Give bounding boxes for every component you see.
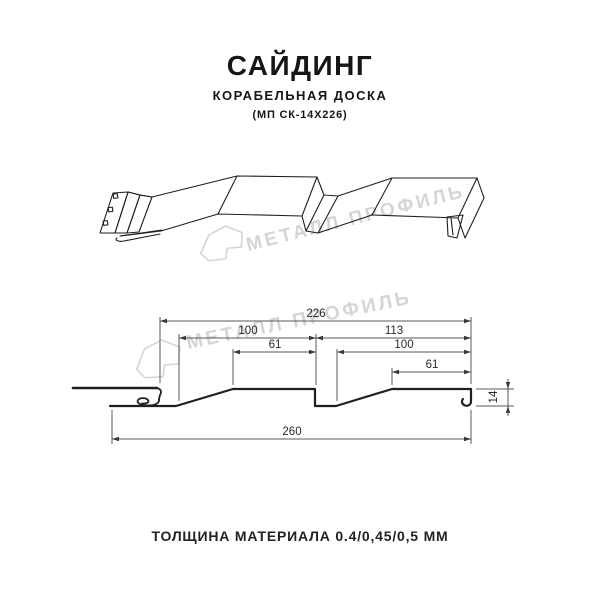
profile-outline (110, 389, 471, 406)
dim-61-right: 61 (426, 359, 439, 371)
perforation-hole (108, 207, 113, 212)
technical-drawing: МЕТАЛЛ ПРОФИЛЬ МЕТАЛЛ ПРОФИЛЬ (0, 0, 600, 600)
dim-260: 260 (282, 426, 301, 438)
dim-14: 14 (488, 390, 500, 403)
perforation-hole (103, 221, 108, 226)
brand-watermark-upper: МЕТАЛЛ ПРОФИЛЬ (196, 181, 467, 264)
lock-fold (115, 192, 140, 233)
dimension-annotations (112, 317, 514, 444)
cross-section-profile (73, 388, 471, 406)
dim-100-right: 100 (394, 339, 413, 351)
brand-watermark-text: МЕТАЛЛ ПРОФИЛЬ (244, 181, 467, 256)
thickness-note: ТОЛЩИНА МАТЕРИАЛА 0.4/0,45/0,5 ММ (0, 528, 600, 544)
ridge-edge (218, 176, 237, 214)
lock-drop (157, 388, 161, 399)
brand-logo-icon (196, 223, 247, 264)
hem-curl (138, 398, 160, 405)
brand-watermark-text: МЕТАЛЛ ПРОФИЛЬ (185, 287, 414, 354)
step-edge (302, 177, 317, 216)
brand-watermark-lower: МЕТАЛЛ ПРОФИЛЬ (132, 287, 414, 382)
brand-logo-icon (132, 336, 186, 382)
dim-113: 113 (385, 325, 403, 337)
dim-226: 226 (306, 308, 325, 320)
perforation-hole (113, 194, 118, 199)
lock-fold (127, 195, 152, 233)
dim-61-left: 61 (269, 339, 282, 351)
dim-100-left: 100 (238, 325, 257, 337)
dimension-arrowheads (112, 319, 510, 441)
page: САЙДИНГ КОРАБЕЛЬНАЯ ДОСКА (МП СК-14Х226)… (0, 0, 600, 600)
